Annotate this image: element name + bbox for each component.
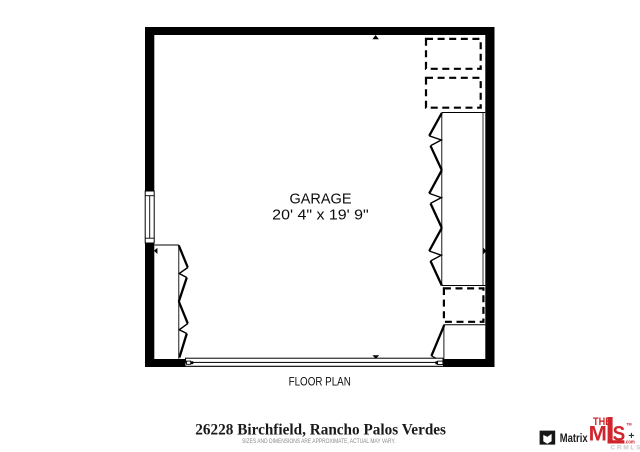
svg-text:M: M (589, 422, 607, 446)
svg-text:TM: TM (626, 423, 631, 427)
svg-text:SIZES AND DIMENSIONS ARE APPRO: SIZES AND DIMENSIONS ARE APPROXIMATE, AC… (242, 438, 396, 445)
svg-text:GARAGE: GARAGE (290, 190, 352, 207)
svg-text:+: + (628, 430, 634, 442)
svg-text:20' 4" x 19' 9": 20' 4" x 19' 9" (272, 207, 369, 224)
svg-text:S: S (613, 422, 626, 445)
svg-text:FLOOR PLAN: FLOOR PLAN (289, 377, 351, 389)
svg-text:CRMLS: CRMLS (611, 445, 640, 452)
svg-text:26228 Birchfield, Rancho Palos: 26228 Birchfield, Rancho Palos Verdes (195, 421, 446, 438)
svg-text:Matrix: Matrix (560, 432, 588, 445)
